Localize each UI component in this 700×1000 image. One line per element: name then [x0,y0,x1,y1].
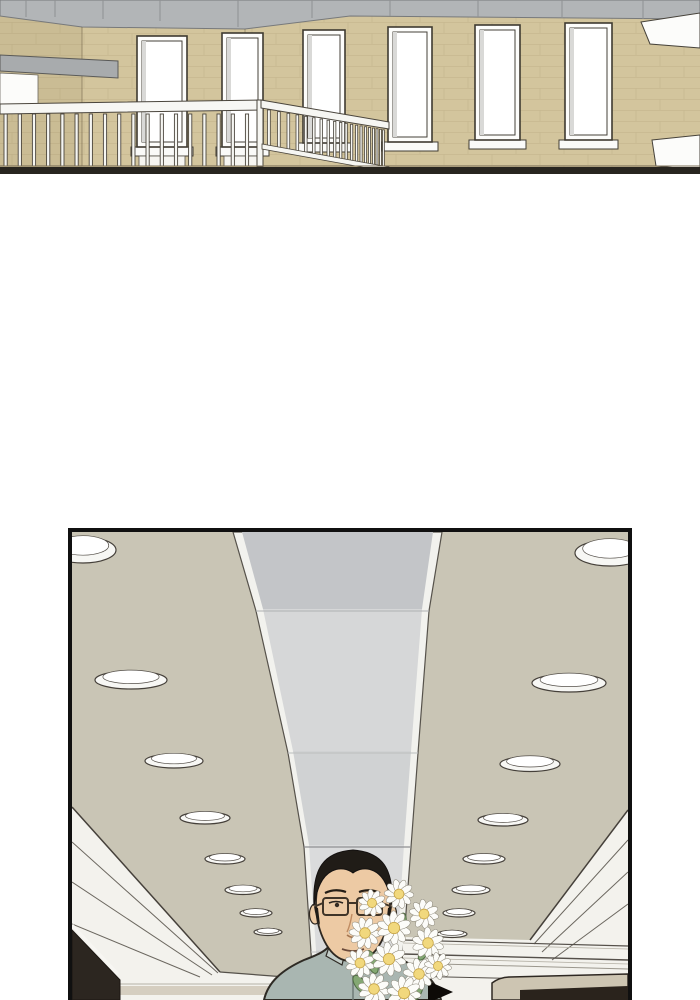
railing-corner-post [257,100,263,167]
railing-baluster [47,114,50,166]
balcony-scene-drawing [0,0,700,174]
ceiling-light-lamp [484,813,523,822]
railing-baluster [334,121,336,158]
window-sill [469,140,526,149]
railing-baluster [160,114,163,166]
railing-baluster [380,129,382,166]
window-glass-shade [142,41,146,142]
channel-segment-1 [242,532,433,609]
lobby-scene-drawing [72,532,628,1000]
railing-baluster [351,124,353,161]
window-glass [393,32,427,137]
ceiling-light-lamp [186,811,225,820]
daisy-center [388,922,399,933]
railing-baluster [89,114,92,166]
ceiling-light-lamp [209,854,240,862]
window-glass-shade [308,35,312,138]
ceiling-light-lamp [468,854,501,862]
railing-baluster [340,122,342,159]
railing-baluster [118,114,121,166]
railing-baluster [61,114,64,166]
daisy-center [355,958,365,968]
floor-band [0,166,700,174]
daisy-center [398,987,409,998]
ceiling-light-lamp [447,909,472,915]
ceiling-light-lamp [456,885,486,892]
daisy-center [360,928,371,939]
railing-baluster [360,126,362,163]
railing-baluster [296,115,299,151]
railing-baluster [365,127,367,164]
railing-baluster [373,128,375,165]
daisy-center [367,898,376,907]
panel-lobby-scene [68,528,632,1000]
window-glass-shade [570,28,574,135]
daisy-center [414,969,425,980]
railing-baluster [305,116,308,153]
railing-baluster [369,127,371,164]
railing-baluster [132,114,135,166]
window-glass-shade [227,38,231,142]
railing-baluster [327,120,329,157]
daisy-center [369,984,380,995]
railing-baluster [231,114,234,166]
railing-baluster [313,118,316,155]
railing-baluster [174,114,177,166]
railing-baluster [189,114,192,166]
railing-baluster [103,114,106,166]
panel-balcony-scene [0,0,700,174]
man-glasses-left-lens [323,898,348,915]
floor-dark-band [0,167,700,174]
window-sill [559,140,618,149]
railing-baluster [203,114,206,166]
railing-baluster [287,113,290,149]
railing-baluster [217,114,220,166]
railing-baluster [245,114,248,166]
railing-baluster [320,119,323,156]
channel-segment-3 [293,751,411,845]
railing-baluster [278,112,281,148]
railing-baluster [268,110,271,146]
daisy-center [394,889,404,899]
window-glass [570,28,607,135]
railing-baluster [146,114,149,166]
railing-baluster [345,123,347,160]
window-glass-shade [393,32,397,137]
railing-baluster [4,114,7,166]
ceiling-light-lamp [540,673,598,687]
railing-baluster [356,125,358,162]
ceiling-light-lamp [507,756,554,767]
daisy-center [419,909,429,919]
railing-baluster [383,130,385,167]
daisy-center [423,938,434,949]
railing-baluster [18,114,21,166]
window-sill [382,142,438,151]
window-glass-shade [480,30,484,135]
ceiling-light-lamp [440,930,463,935]
comic-page [0,0,700,1000]
railing-baluster [376,129,378,166]
ceiling-light-lamp [103,670,159,684]
white-trim-panel [652,135,700,170]
window-apron [224,156,261,166]
ceiling-light-lamp [151,753,196,764]
window-glass [480,30,515,135]
ceiling-light-lamp [244,909,269,915]
railing-baluster [75,114,78,166]
ceiling-light-lamp [257,928,279,933]
daisy-center [383,953,394,964]
daisy-center [433,961,442,970]
ceiling-light-lamp [229,885,257,892]
railing-baluster [32,114,35,166]
